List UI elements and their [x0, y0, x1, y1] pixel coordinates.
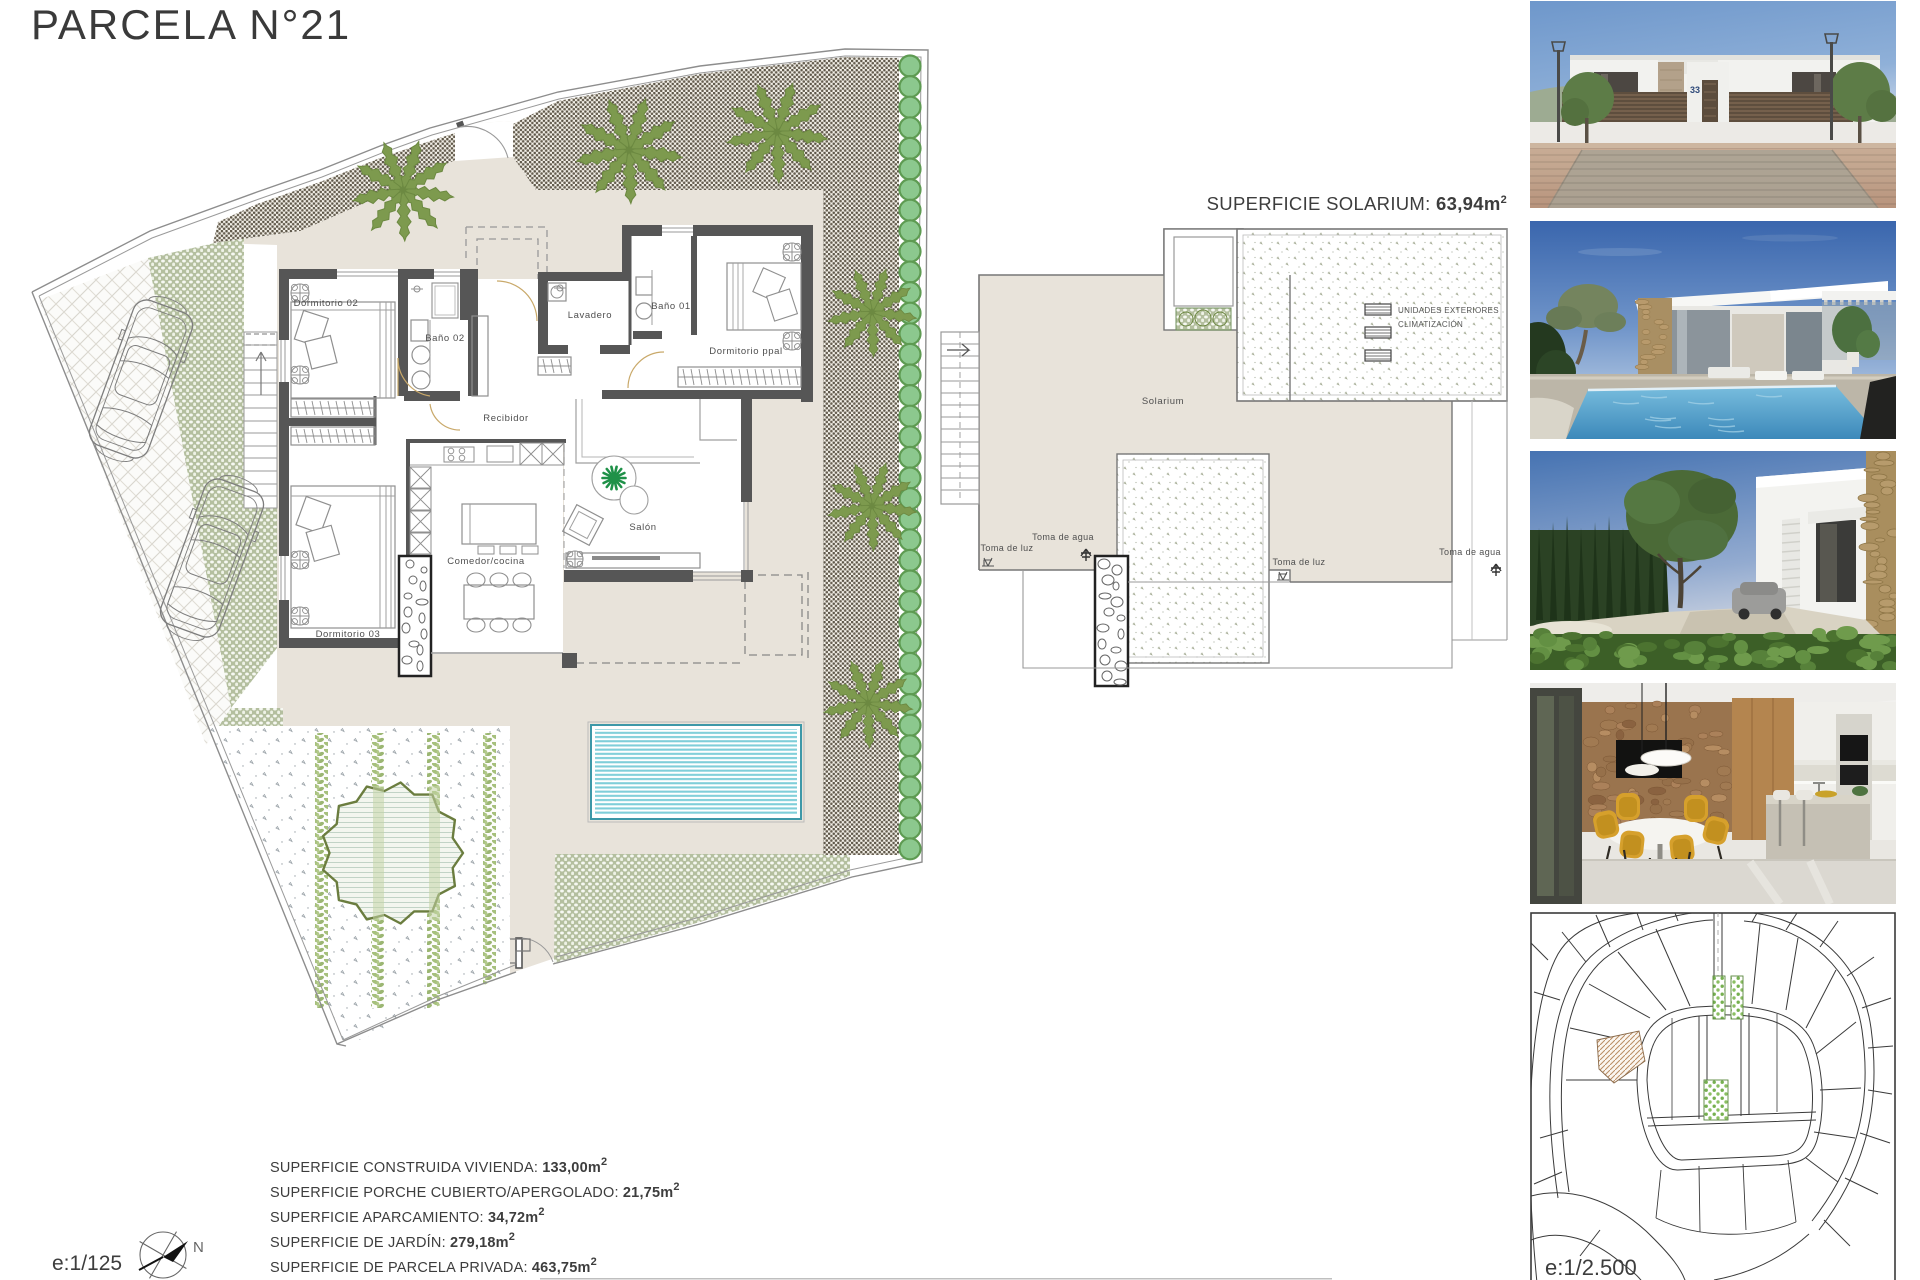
svg-text:Toma de agua: Toma de agua [1032, 532, 1094, 542]
svg-text:Solarium: Solarium [1142, 396, 1184, 407]
svg-text:Dormitorio 03: Dormitorio 03 [316, 629, 381, 640]
svg-text:UNIDADES EXTERIORES: UNIDADES EXTERIORES [1398, 306, 1499, 315]
svg-text:e:1/125: e:1/125 [52, 1252, 122, 1275]
svg-text:Toma de agua: Toma de agua [1439, 547, 1501, 557]
svg-text:Dormitorio ppal: Dormitorio ppal [709, 346, 782, 357]
svg-text:Baño 02: Baño 02 [425, 333, 465, 344]
svg-text:Recibidor: Recibidor [483, 413, 529, 424]
svg-text:Dormitorio 02: Dormitorio 02 [294, 298, 359, 309]
svg-text:e:1/2.500: e:1/2.500 [1545, 1255, 1637, 1280]
svg-text:PARCELA N°21: PARCELA N°21 [31, 1, 351, 48]
svg-text:Toma de luz: Toma de luz [1273, 557, 1326, 567]
svg-text:Toma de luz: Toma de luz [981, 543, 1034, 553]
svg-text:Baño 01: Baño 01 [651, 301, 691, 312]
svg-text:Salón: Salón [629, 522, 656, 533]
svg-text:CLIMATIZACIÓN: CLIMATIZACIÓN [1398, 320, 1463, 329]
svg-text:33: 33 [1690, 85, 1700, 95]
svg-text:Comedor/cocina: Comedor/cocina [447, 556, 525, 567]
svg-text:SUPERFICIE SOLARIUM: 63,94m2: SUPERFICIE SOLARIUM: 63,94m2 [1207, 193, 1507, 214]
svg-text:Lavadero: Lavadero [568, 310, 612, 321]
svg-text:N: N [193, 1239, 204, 1256]
